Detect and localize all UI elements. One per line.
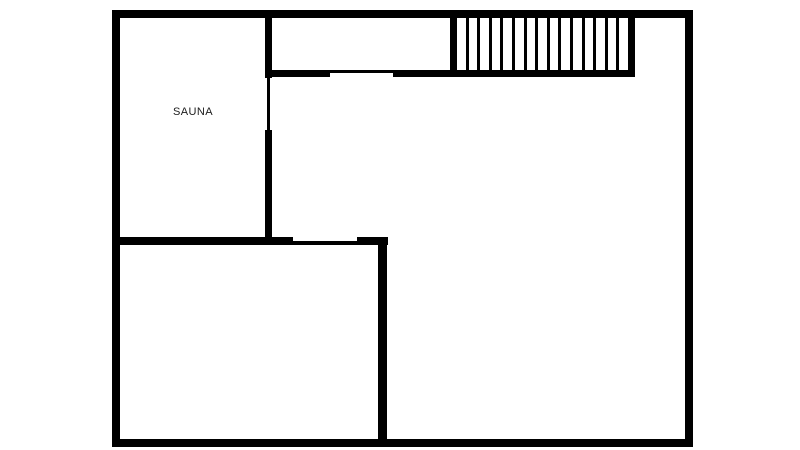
sauna-wall-right-opening [267, 77, 270, 131]
hallway-wall-opening [330, 70, 393, 73]
stair-tread [500, 17, 503, 70]
floor-plan-canvas: SAUNA [0, 0, 800, 450]
bottom-room-wall-top-opening [293, 241, 357, 245]
sauna-wall-right-lower [265, 130, 272, 245]
stair-tread [558, 17, 561, 70]
staircase [450, 17, 635, 77]
hallway-wall-right [393, 70, 453, 77]
stair-tread [547, 17, 550, 70]
stair-tread [524, 17, 527, 70]
hallway-wall-left [265, 70, 330, 77]
bottom-room-wall-top-left [113, 237, 293, 245]
sauna-wall-right-upper [265, 10, 272, 78]
stair-tread [616, 17, 619, 70]
stair-tread [512, 17, 515, 70]
stair-tread [535, 17, 538, 70]
stair-tread [477, 17, 480, 70]
stair-tread [582, 17, 585, 70]
bottom-room-wall-right [378, 237, 387, 447]
stair-tread [466, 17, 469, 70]
sauna-room-label: SAUNA [120, 106, 266, 118]
stair-tread [605, 17, 608, 70]
stair-tread [570, 17, 573, 70]
stair-tread [593, 17, 596, 70]
stair-tread [489, 17, 492, 70]
